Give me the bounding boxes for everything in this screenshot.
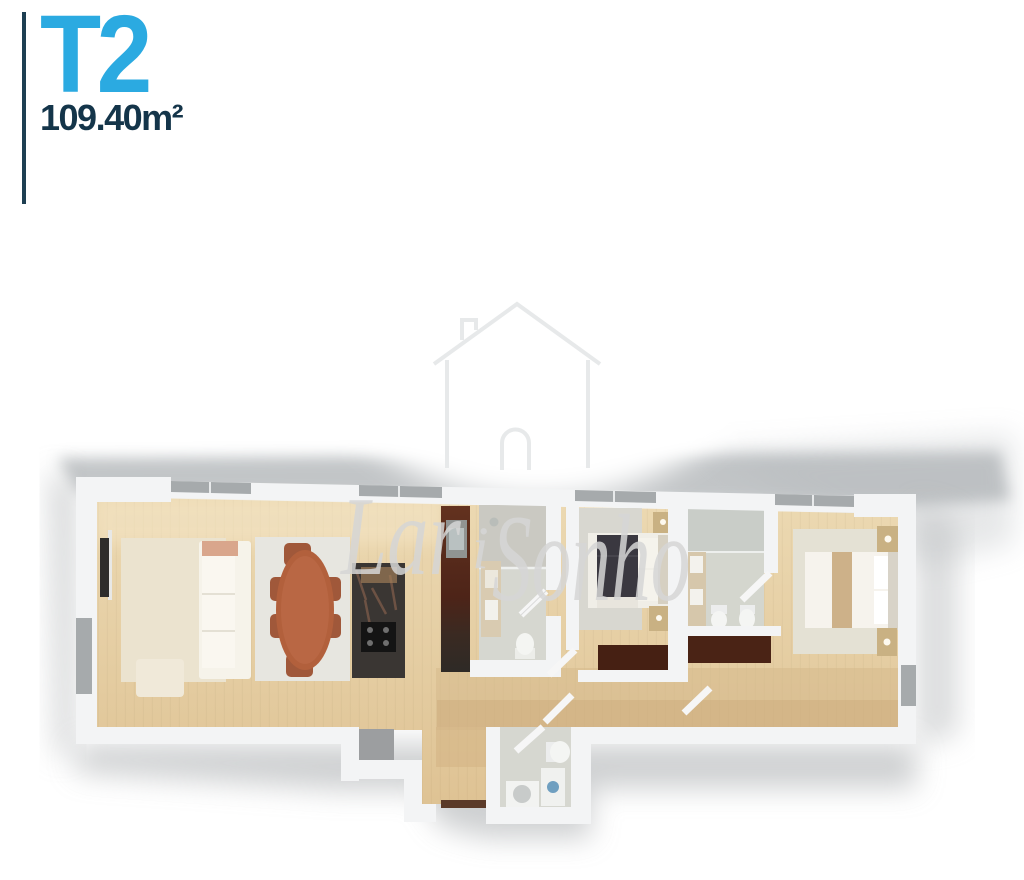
svg-text:i: i — [472, 515, 489, 581]
svg-text:Lar: Lar — [339, 475, 461, 599]
svg-text:Sonho: Sonho — [492, 489, 690, 627]
